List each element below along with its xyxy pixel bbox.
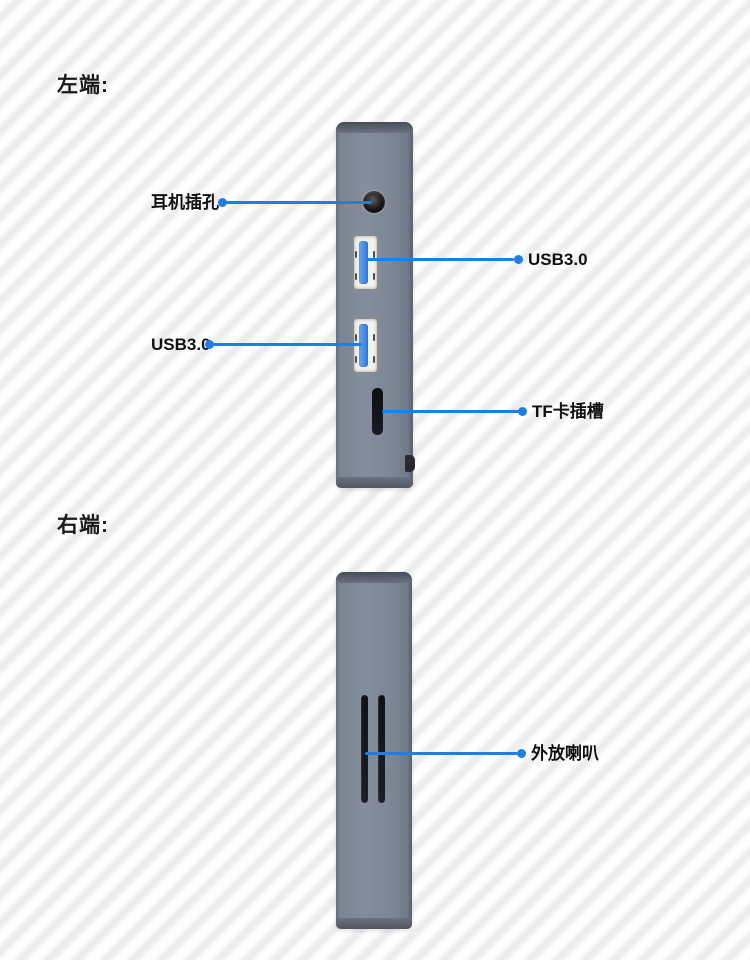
callout-label-usb-top: USB3.0 — [528, 250, 588, 270]
usb-pin — [373, 334, 375, 341]
callout-line-speaker — [365, 752, 518, 755]
usb-pin — [373, 356, 375, 363]
callout-line-usb-bottom — [213, 343, 362, 346]
callout-label-headphone: 耳机插孔 — [151, 193, 219, 213]
section-heading-left-end: 左端: — [57, 74, 109, 98]
product-diagram-page: 左端: 耳机插孔 USB3.0 USB3.0 — [0, 0, 750, 960]
usb-pin — [355, 334, 357, 341]
device-left-side-view — [336, 122, 413, 488]
callout-line-tf — [382, 410, 520, 413]
device-top-edge — [336, 122, 413, 133]
device-top-edge — [336, 572, 412, 583]
callout-dot — [517, 749, 526, 758]
callout-dot — [518, 407, 527, 416]
usb-tongue — [359, 241, 368, 284]
speaker-slot-right — [378, 695, 385, 803]
callout-label-tf: TF卡插槽 — [532, 402, 604, 422]
usb-pin — [355, 273, 357, 280]
usb-pin — [373, 273, 375, 280]
callout-label-speaker: 外放喇叭 — [531, 744, 599, 764]
callout-dot — [514, 255, 523, 264]
usb-pin — [355, 251, 357, 258]
rear-connector-bump — [405, 455, 415, 472]
section-heading-right-end: 右端: — [57, 514, 109, 538]
callout-line-headphone — [225, 201, 372, 204]
usb-pin — [373, 251, 375, 258]
usb-pin — [355, 356, 357, 363]
callout-line-usb-top — [367, 258, 514, 261]
device-right-side-view — [336, 572, 412, 929]
callout-label-usb-bottom: USB3.0 — [151, 335, 211, 355]
device-bottom-edge — [336, 918, 412, 929]
device-bottom-edge — [336, 477, 413, 488]
usb3-port-top — [352, 234, 379, 291]
speaker-slot-left — [361, 695, 368, 803]
